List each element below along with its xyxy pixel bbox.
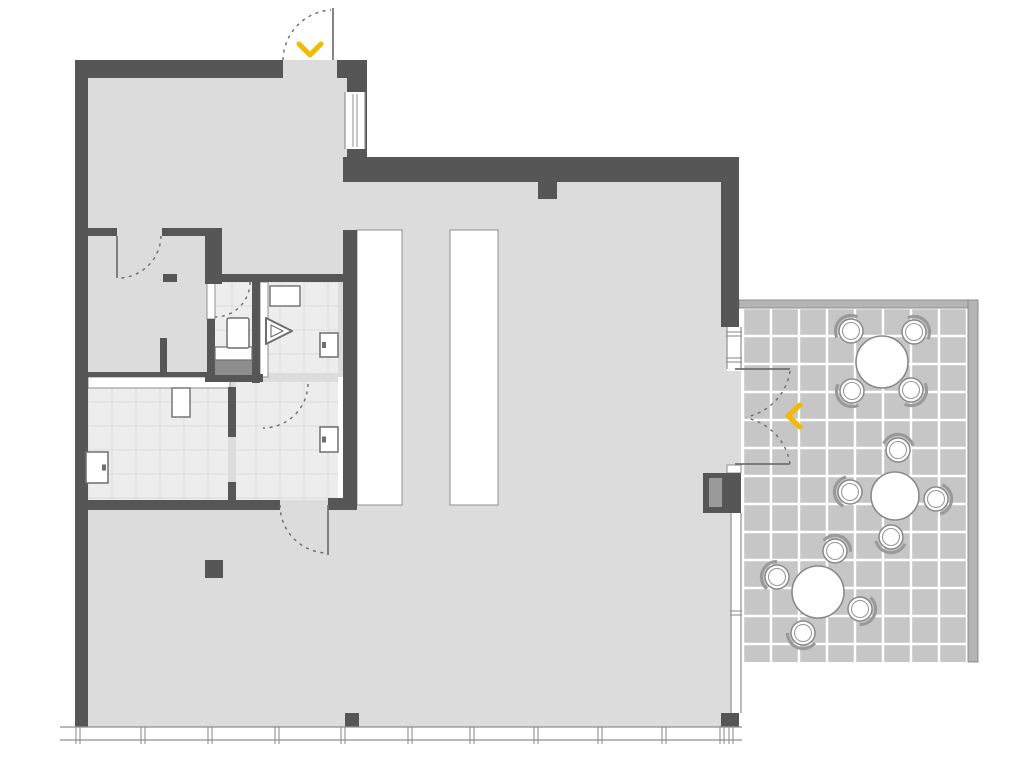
column-southeast	[721, 713, 739, 728]
shower-top-wall	[222, 274, 357, 282]
wall-unit-inner	[709, 478, 722, 507]
east-glazing	[730, 513, 742, 713]
floor-patio-door-threshold	[721, 371, 741, 465]
column-hall	[205, 560, 223, 578]
hall-counter-1	[357, 230, 402, 505]
hall-left-wall	[343, 230, 357, 505]
corridor-wall-stub	[163, 274, 177, 282]
floor-entry-threshold	[283, 60, 337, 78]
floor-hall-gap	[343, 182, 357, 230]
patio-door-sidelight-glass	[727, 327, 741, 369]
wc-tray	[215, 360, 252, 375]
outer-wall-right-upper	[721, 182, 739, 327]
floor-lower-left	[88, 510, 357, 728]
radiator-annex-valve	[322, 437, 326, 443]
room-a-wall-left	[88, 228, 117, 236]
wc-shower-wall	[252, 282, 260, 383]
outer-wall-top-right	[337, 60, 367, 78]
wc-toilet	[227, 318, 249, 348]
annex-stub-upper	[228, 387, 236, 437]
entry-window	[345, 92, 365, 149]
south-window-band-glass	[60, 727, 742, 740]
floor-main-hall	[357, 182, 727, 728]
hall-top-wall	[343, 157, 739, 182]
hall-pier	[538, 182, 557, 199]
outer-wall-top	[75, 60, 283, 78]
patio-border-right	[968, 300, 978, 662]
entry-direction-chevron	[299, 44, 321, 55]
patio-table-3	[792, 566, 844, 618]
entry-window-glass	[345, 92, 365, 149]
corridor-stub-wall	[160, 338, 167, 377]
shower-sink	[270, 286, 300, 306]
patio-table-1	[856, 336, 908, 388]
wc-door-panel	[207, 282, 215, 319]
east-glazing-glass	[731, 513, 741, 713]
south-window-band	[60, 726, 742, 744]
floor-plan	[0, 0, 1024, 765]
radiator-shower-valve	[322, 342, 326, 348]
wc-left-wall	[207, 319, 215, 377]
radiator-laundry-valve	[102, 465, 106, 471]
outer-wall-left	[75, 60, 88, 730]
floor-plan-drawing	[0, 0, 1024, 765]
laundry-tiles	[88, 388, 228, 500]
hall-counter-2	[450, 230, 498, 505]
radiator-shower	[320, 333, 338, 357]
laundry-tiles-bg	[88, 388, 228, 500]
patio-door-frame-piece	[727, 465, 741, 473]
laundry-sink	[172, 388, 190, 417]
wc-bottom-wall	[205, 374, 263, 382]
laundry-bottom-wall	[88, 500, 280, 510]
laundry-bottom-wall-right	[328, 498, 357, 510]
radiator-laundry	[86, 452, 108, 483]
room-a-corner-wall	[205, 228, 222, 284]
wc-toilet-shelf	[215, 347, 252, 360]
patio-door-sidelight	[726, 327, 742, 369]
column-south	[345, 713, 359, 728]
patio-table-2	[871, 472, 919, 520]
patio-border-top	[739, 300, 978, 308]
radiator-annex	[320, 427, 338, 452]
